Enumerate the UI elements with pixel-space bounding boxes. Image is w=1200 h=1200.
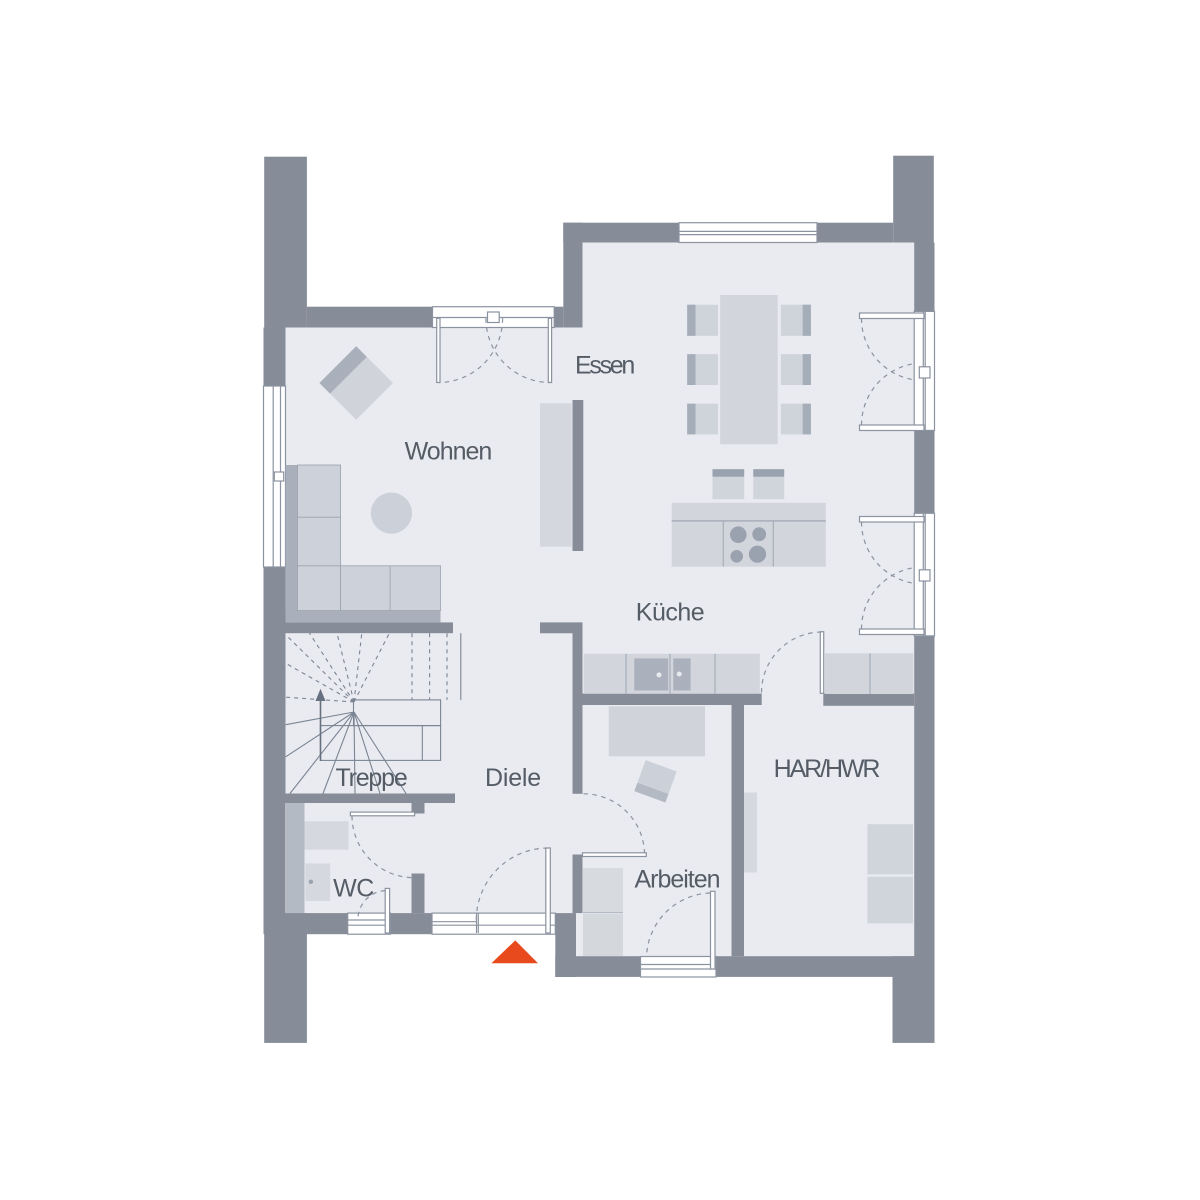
svg-text:Wohnen: Wohnen bbox=[405, 438, 492, 466]
svg-text:Diele: Diele bbox=[485, 764, 541, 792]
svg-text:Küche: Küche bbox=[636, 599, 704, 627]
svg-text:Treppe: Treppe bbox=[335, 764, 406, 792]
svg-text:HAR/HWR: HAR/HWR bbox=[774, 755, 880, 783]
svg-text:Arbeiten: Arbeiten bbox=[634, 866, 719, 894]
svg-text:WC: WC bbox=[333, 875, 374, 903]
svg-text:Essen: Essen bbox=[575, 352, 634, 380]
